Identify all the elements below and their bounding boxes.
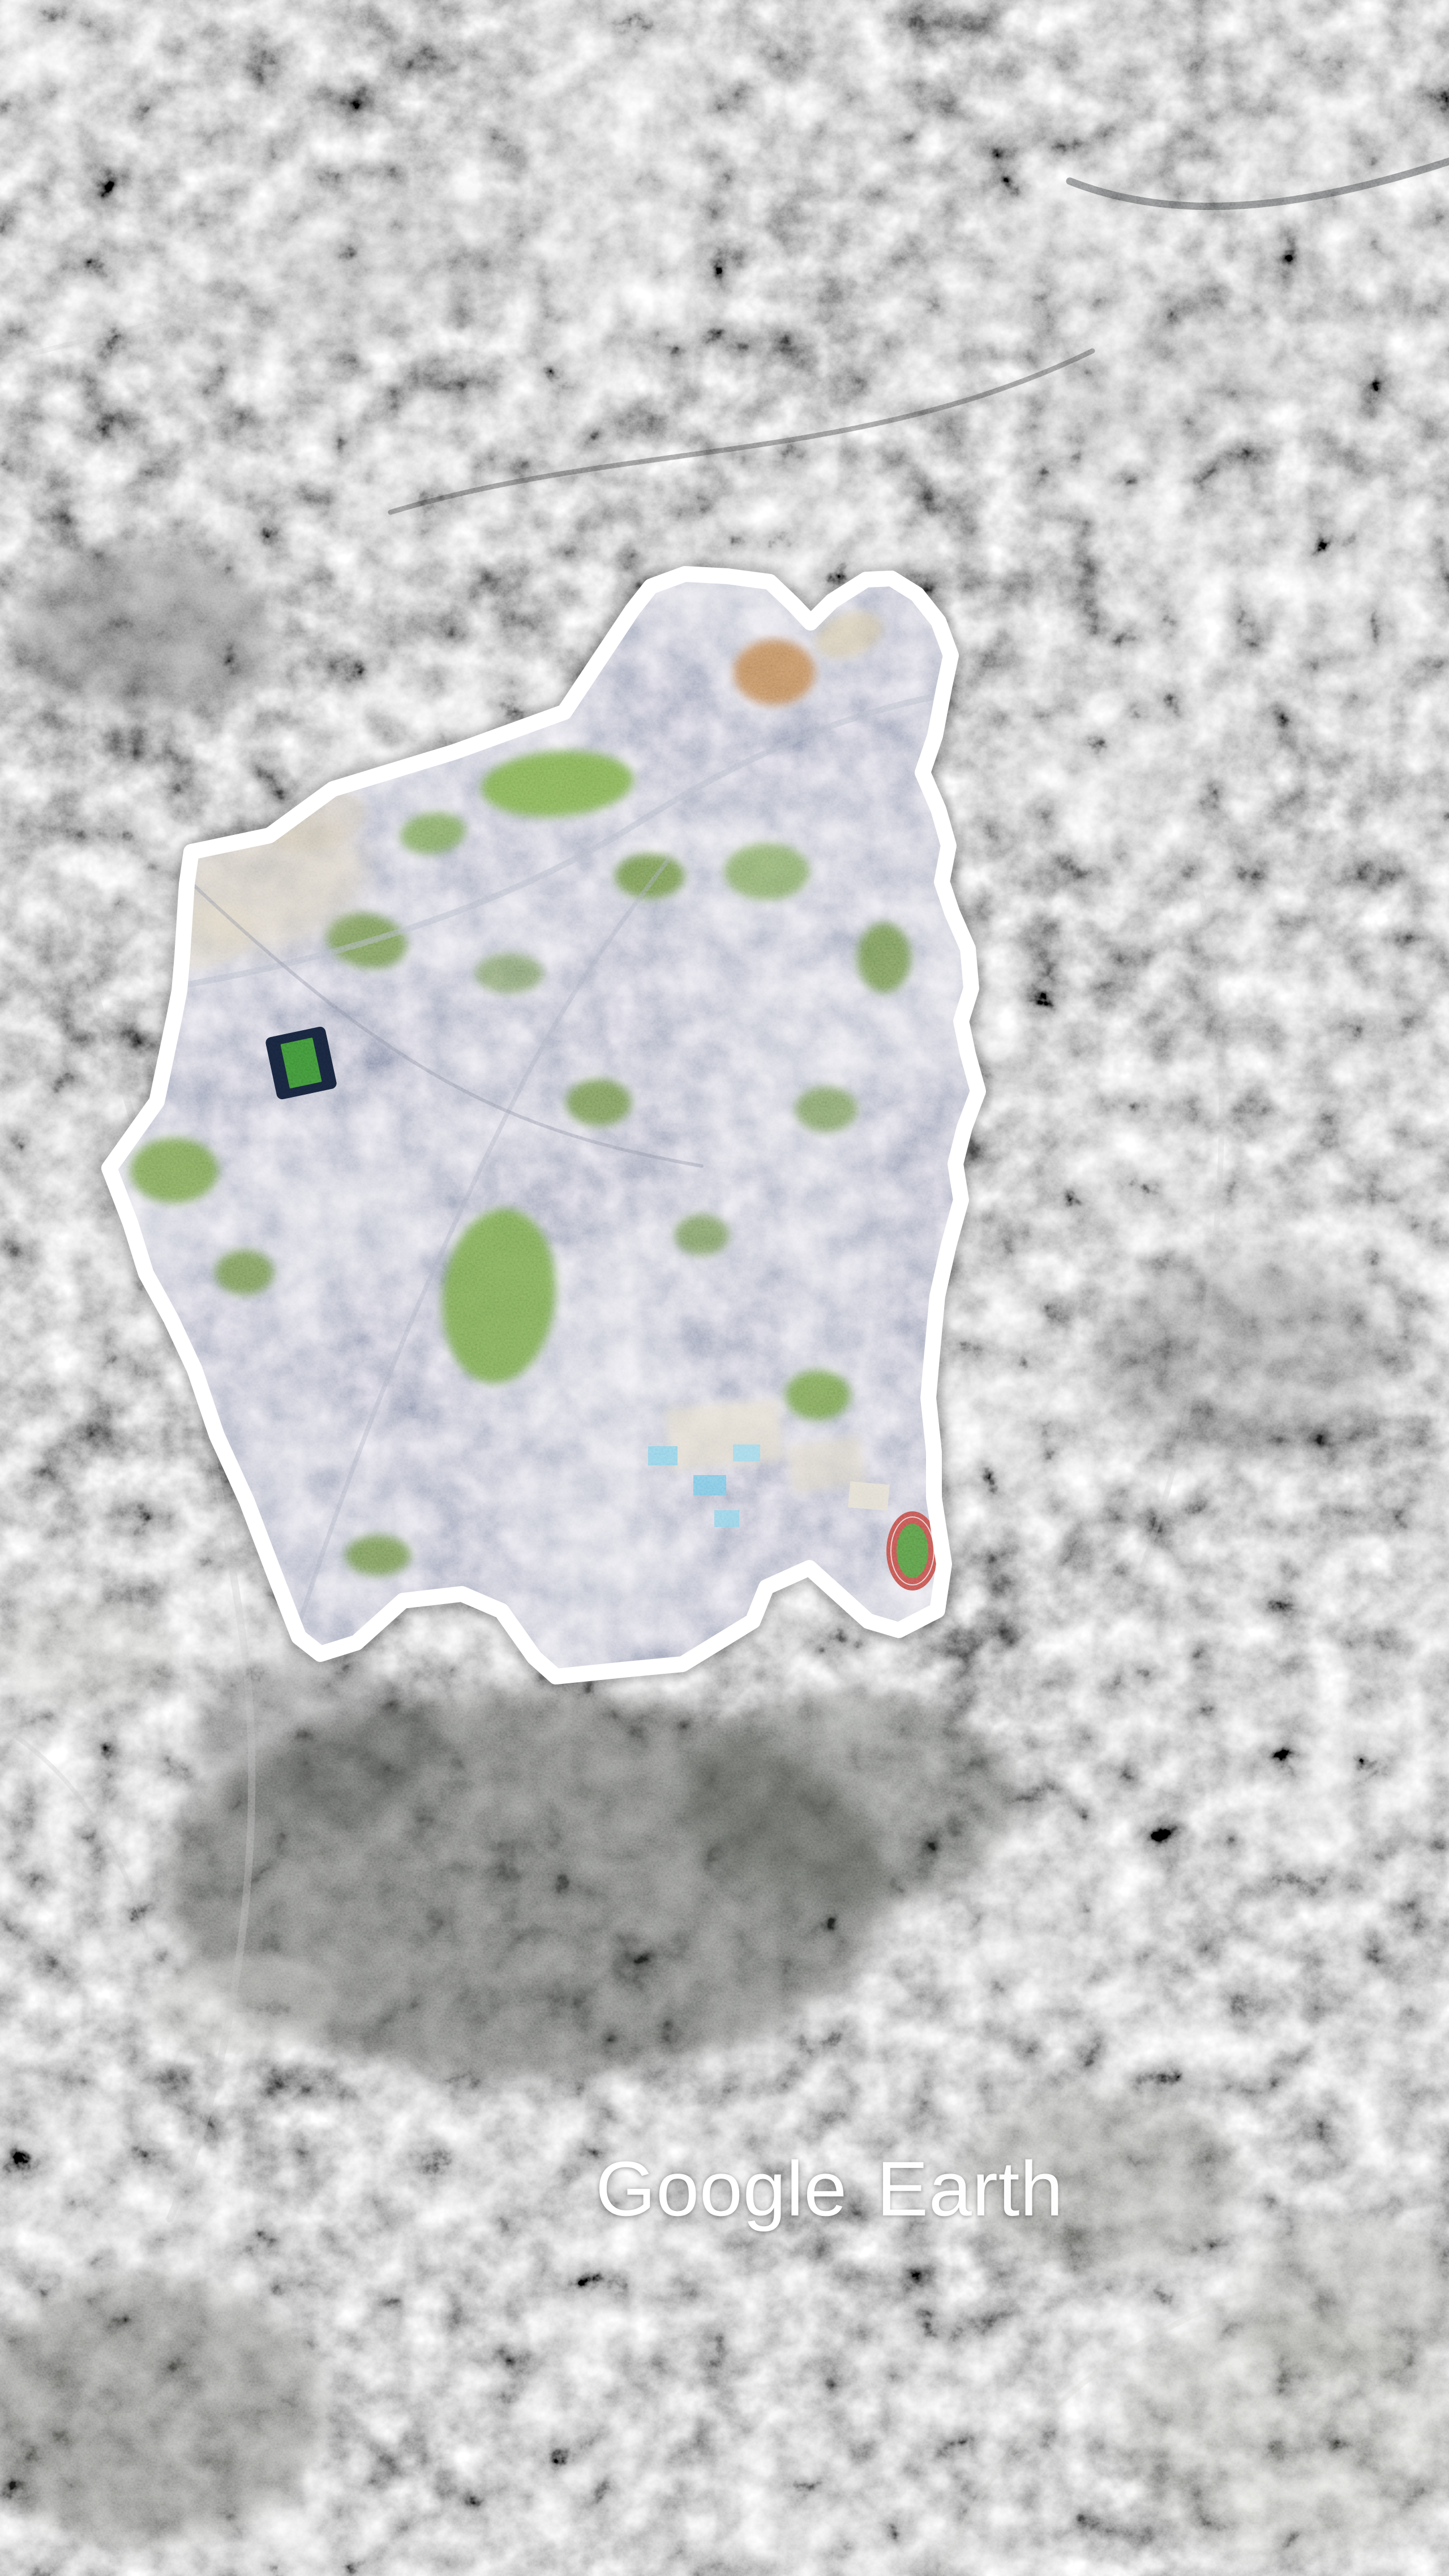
google-earth-watermark: GoogleEarth	[595, 2150, 1064, 2228]
watermark-brand: Google	[595, 2146, 847, 2232]
map-viewport[interactable]: GoogleEarth	[0, 0, 1449, 2576]
watermark-product: Earth	[877, 2146, 1064, 2232]
